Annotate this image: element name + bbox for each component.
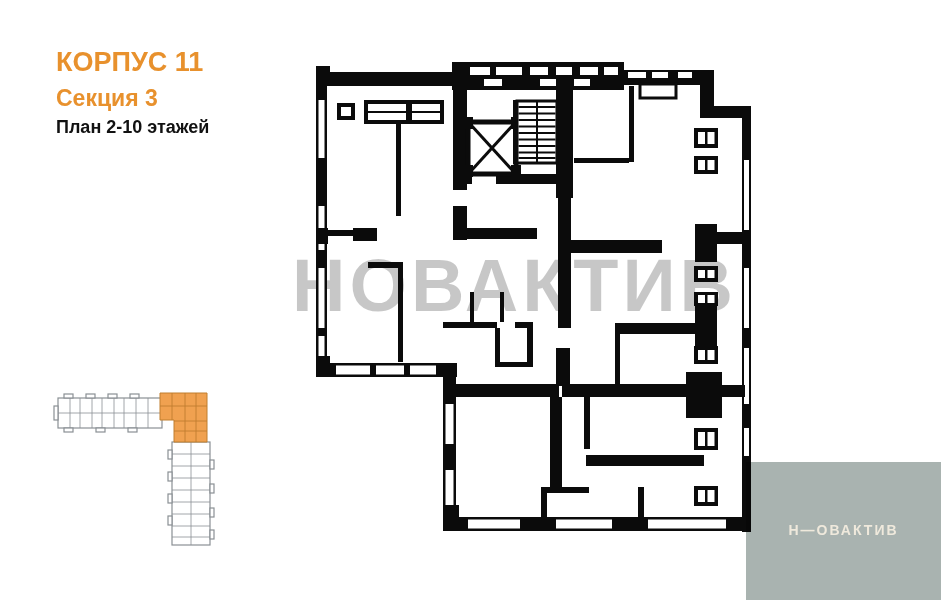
developer-logo-box: Н—ОВАКТИВ <box>746 462 941 600</box>
keyplan-west-wing <box>54 394 162 432</box>
floor-plan-page: КОРПУС 11 Секция 3 План 2-10 этажей НОВА… <box>0 0 941 600</box>
keyplan-highlight-section <box>160 393 207 442</box>
developer-logo-text: Н—ОВАКТИВ <box>788 522 898 538</box>
keyplan-south-wing <box>168 442 214 545</box>
